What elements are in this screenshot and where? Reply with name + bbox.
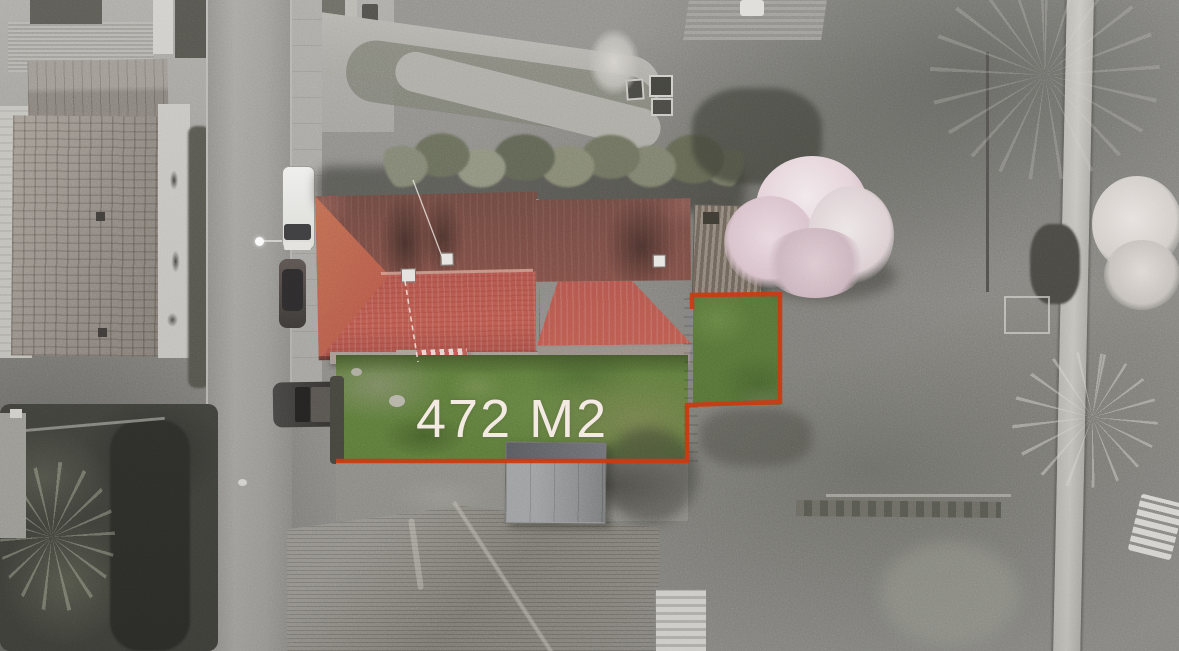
van-windshield [284,224,311,240]
patio-frame [1004,296,1050,334]
ground-shadow [602,428,697,523]
street-lamp [255,237,264,246]
stepping-stone [389,395,405,407]
left-upper-roof [27,59,168,121]
car-windshield [295,387,310,422]
chimney [401,268,416,282]
roof-vent [96,212,105,221]
top-left-pillar [153,0,173,54]
left-house-tiled-roof [11,115,169,356]
chimney [653,254,666,267]
manhole [238,479,247,486]
blossom-tree [726,148,894,300]
light-bush-cluster [880,542,1020,646]
second-house [535,198,692,352]
left-house-east-wall [158,104,190,358]
aerial-drone-photo: 472 M2 [0,0,1179,651]
roof-north-slope [535,198,691,282]
main-house [315,192,540,361]
garden-bed-frame [649,75,673,97]
wall-edge-highlight [826,494,1011,497]
garden-shed [505,442,607,525]
pavement-edge [0,413,26,538]
van-hood [284,242,311,250]
side-lawn [693,296,780,405]
roof-vent [98,328,107,337]
street [208,0,292,651]
dark-bush [1030,224,1080,304]
top-left-dark-patch [30,0,102,24]
bare-tree-branches [1012,352,1158,488]
white-outbuilding [655,589,707,651]
garden-bench [1128,494,1179,561]
plot-area-label: 472 M2 [416,388,608,450]
dark-fence [330,376,344,464]
top-right-white-object [740,0,764,16]
shed-box [703,212,719,224]
blossom-canopy [764,228,866,298]
bare-tree-branches [930,0,1160,180]
conifer-hedge [110,420,190,651]
roof-south-slope [536,280,692,346]
car-window [282,269,303,311]
pale-tree [588,28,640,96]
chimney [441,252,454,265]
shed-roof [506,461,606,523]
white-marker [10,409,22,418]
gravel-patch [700,408,812,466]
white-blossom-tree [1104,240,1179,310]
garden-bed-frame [651,98,673,116]
garden-hedge-wall [796,500,1001,518]
stepping-stone [351,368,362,376]
hedge-row [384,122,744,196]
